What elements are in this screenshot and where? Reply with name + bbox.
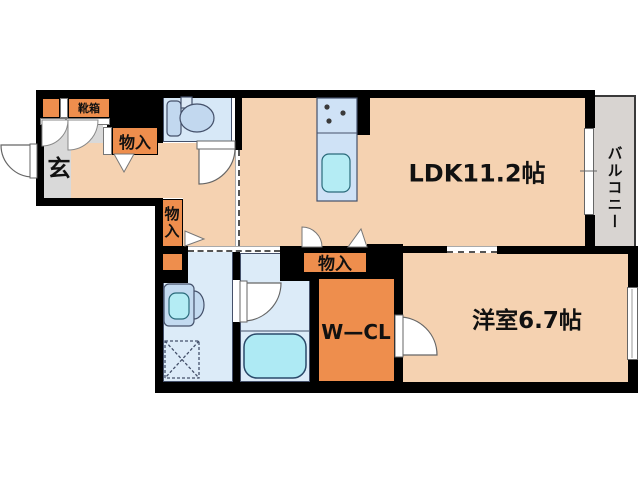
western-room-sliding-door — [447, 246, 497, 253]
storage-hall-label: 物入 — [119, 129, 151, 153]
storage-corridor-label: 物入 — [162, 206, 183, 240]
wall-wcl-west-upper — [395, 253, 403, 315]
balcony-window — [584, 128, 594, 215]
ldk-hall-sliding-door — [235, 150, 240, 246]
entrance-label: 玄 — [48, 149, 71, 183]
balcony-label: バルコニー — [605, 146, 626, 231]
wcl-label: W—CL — [321, 320, 390, 344]
ldk-label: LDK11.2帖 — [408, 154, 545, 189]
wall-toilet-right — [235, 90, 242, 150]
toilet-room — [163, 94, 232, 142]
shoe-cabinet-front-left — [40, 118, 66, 125]
storage-ldk-label: 物入 — [318, 250, 352, 275]
storage-corridor-box-lower — [162, 253, 183, 271]
wall-west-right-upper — [628, 246, 638, 287]
shoe-box-label: 靴箱 — [78, 100, 100, 116]
wall-bottom — [155, 382, 638, 393]
entrance-door — [1, 144, 37, 178]
wall-wash-bath-lower — [233, 322, 240, 382]
wall-kitchen-stub — [355, 95, 370, 135]
western-room-window — [627, 287, 638, 360]
shoe-cabinet-front-right — [66, 118, 110, 125]
shoe-cabinet-small — [42, 98, 60, 118]
storage-hall-front — [103, 127, 112, 155]
wall-wash-bath-upper — [233, 251, 240, 280]
wall-west-room-top — [497, 246, 632, 254]
wall-west-right-lower — [628, 360, 638, 382]
wall-entry-bottom — [36, 198, 163, 206]
washroom-sliding-door — [188, 246, 280, 252]
wall-ldk-right-upper — [585, 90, 595, 128]
wall-ldk-west-room — [403, 246, 447, 253]
wall-wcl-west-lower — [395, 357, 403, 382]
floor-plan: 玄 靴箱 物入 物入 物入 LDK11.2帖 洋室6.7帖 W—CL バルコニー — [0, 0, 640, 480]
corridor-floor — [183, 198, 235, 246]
wall-toilet-left-block — [107, 90, 163, 127]
western-room-label: 洋室6.7帖 — [472, 301, 582, 335]
shoe-cabinet-gap — [60, 98, 68, 118]
